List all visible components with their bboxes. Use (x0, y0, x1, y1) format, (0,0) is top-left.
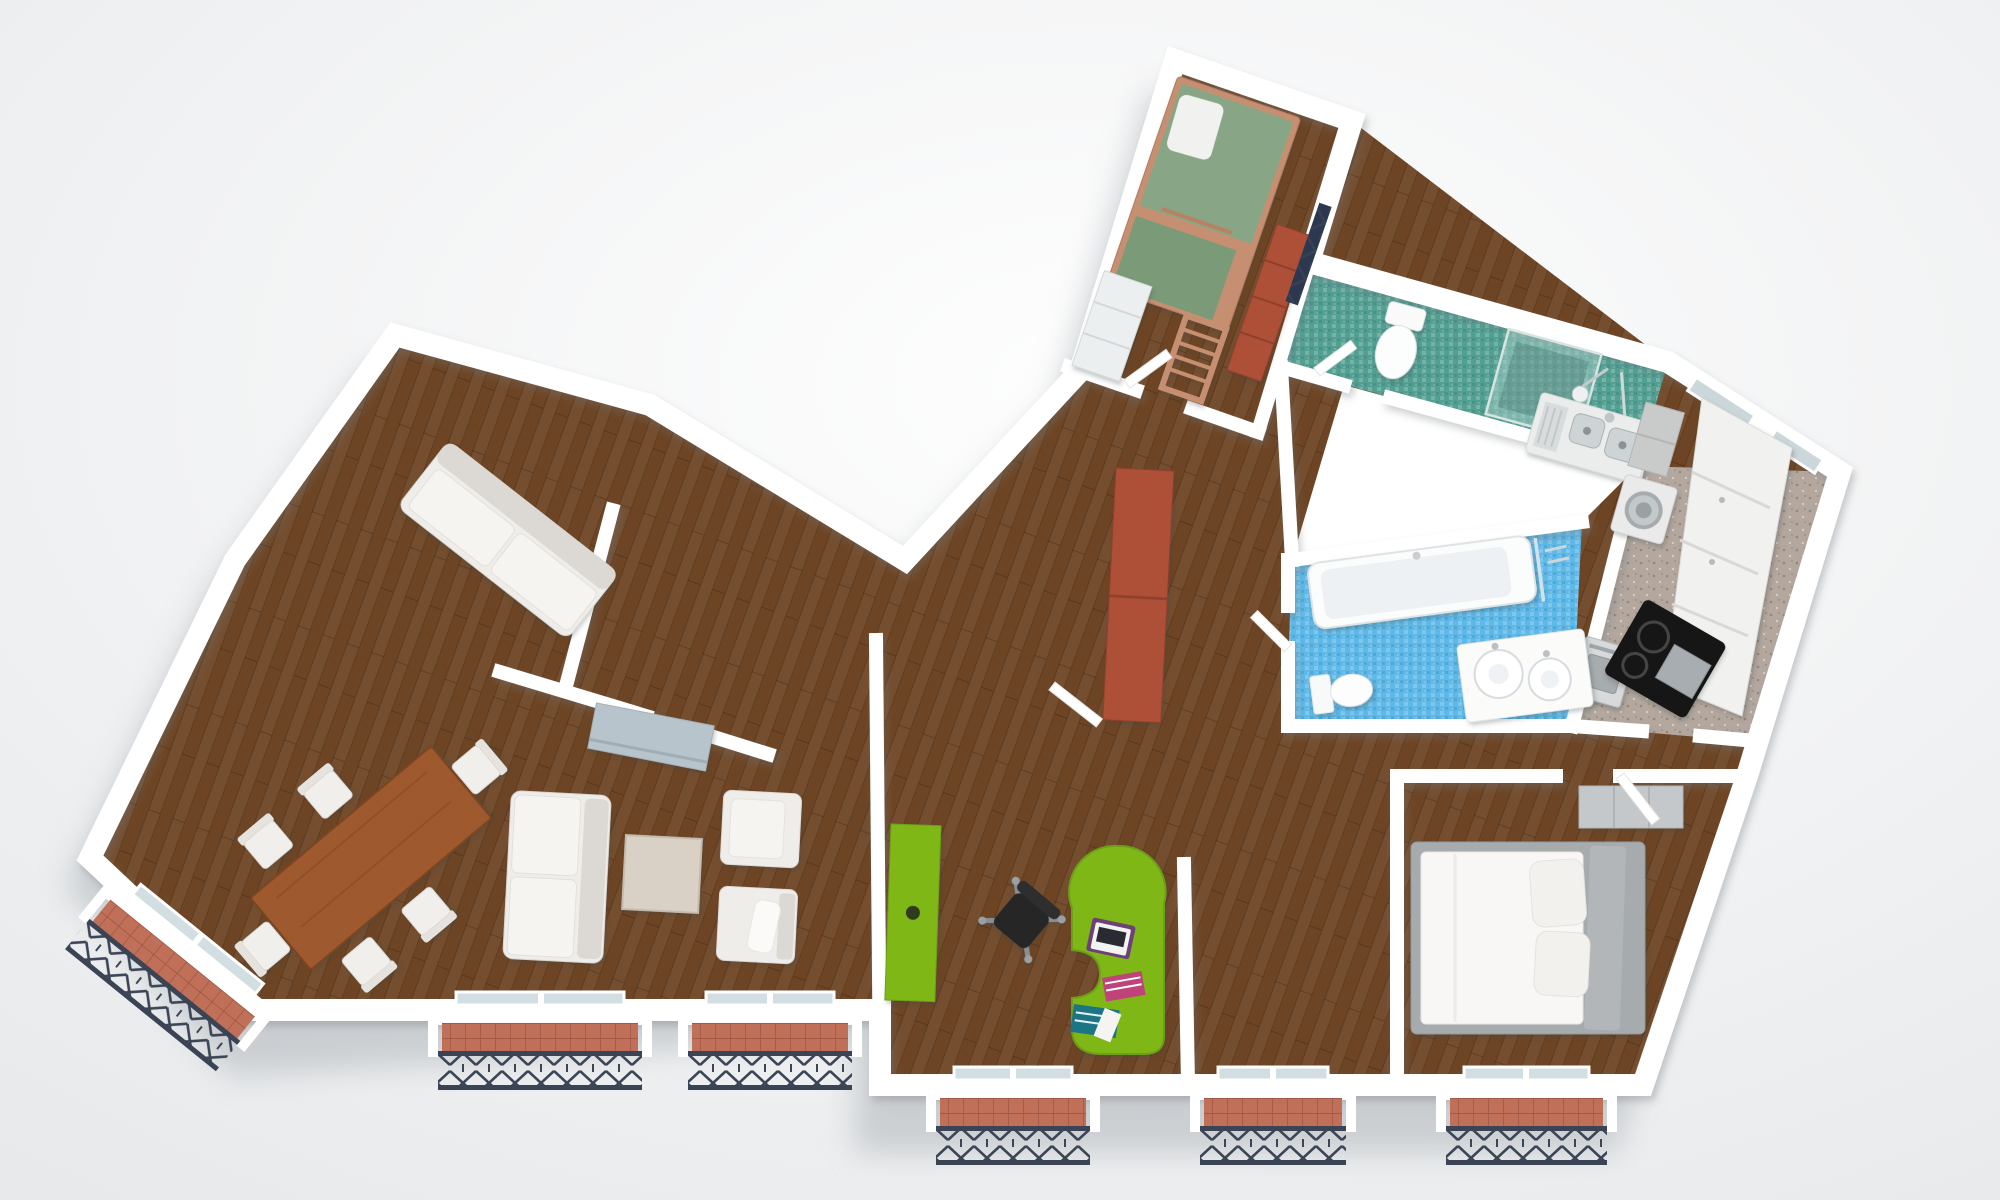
iron-lattice (438, 1053, 642, 1087)
window-bay-living-1 (428, 992, 652, 1090)
office-cabinet-green (885, 824, 941, 1002)
armchair-with-pillow (716, 886, 798, 964)
window-bay-corridor (1190, 1067, 1356, 1165)
window-bay-bedroom (1436, 1067, 1617, 1165)
double-bed (1411, 842, 1645, 1034)
rail-bottom-bar (438, 1085, 642, 1090)
bay-jamb (434, 1005, 646, 1025)
window-bay-living-2 (678, 992, 862, 1090)
sofa-cushion (511, 795, 581, 876)
headboard (1584, 845, 1626, 1030)
rail-top-bar (438, 1051, 642, 1056)
balcony-tile-grid (442, 1023, 638, 1053)
floor-plan-canvas (0, 0, 2000, 1200)
sofa-three-seat (503, 790, 612, 963)
pillow (1529, 858, 1587, 928)
sofa-cushion (507, 877, 577, 958)
cabinet-handle (1709, 559, 1715, 565)
office-desk-green (1069, 846, 1166, 1054)
cabinet-handle (1719, 497, 1725, 503)
mullion (538, 992, 544, 1005)
bay-side-left (428, 1005, 438, 1057)
bay-side-right (642, 1005, 652, 1057)
window-bay-office (926, 1067, 1100, 1165)
pillow (1533, 931, 1590, 998)
floor-plan-stage (0, 0, 2000, 1200)
coffee-table (622, 835, 702, 913)
vanity-double-basin (1457, 629, 1594, 723)
armchair (720, 790, 802, 868)
